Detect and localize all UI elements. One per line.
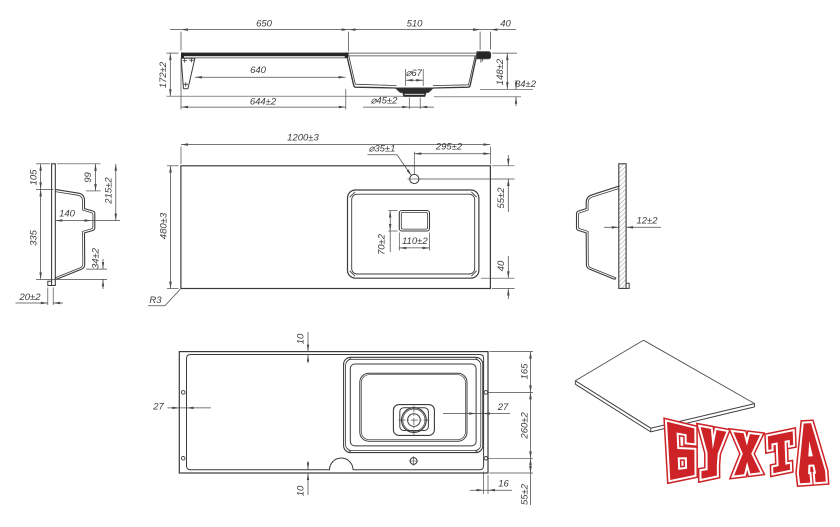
svg-text:34±2: 34±2 xyxy=(91,247,102,269)
svg-text:27: 27 xyxy=(497,402,509,413)
svg-text:40: 40 xyxy=(500,19,511,30)
svg-text:1200±3: 1200±3 xyxy=(287,133,319,144)
svg-text:⌀45±2: ⌀45±2 xyxy=(371,96,399,107)
svg-text:148±2: 148±2 xyxy=(495,58,506,85)
svg-text:⌀67: ⌀67 xyxy=(406,68,423,79)
svg-text:R3: R3 xyxy=(149,295,162,306)
svg-text:55±2: 55±2 xyxy=(496,187,507,209)
svg-text:510: 510 xyxy=(407,19,424,30)
svg-text:16: 16 xyxy=(498,479,509,490)
svg-text:27: 27 xyxy=(152,401,164,412)
svg-text:640: 640 xyxy=(250,65,267,76)
svg-text:260±2: 260±2 xyxy=(519,412,530,440)
svg-text:99: 99 xyxy=(83,172,94,183)
svg-text:⌀35±1: ⌀35±1 xyxy=(369,143,396,154)
svg-text:110±2: 110±2 xyxy=(402,236,428,247)
svg-text:172±2: 172±2 xyxy=(158,61,169,88)
svg-text:40: 40 xyxy=(496,260,507,271)
svg-text:10: 10 xyxy=(296,485,307,496)
svg-text:480±3: 480±3 xyxy=(158,212,169,239)
svg-text:644±2: 644±2 xyxy=(250,96,277,107)
svg-text:165: 165 xyxy=(519,363,530,380)
svg-text:650: 650 xyxy=(256,19,273,30)
svg-text:215±2: 215±2 xyxy=(104,177,115,205)
svg-text:70±2: 70±2 xyxy=(376,233,387,255)
svg-text:55±2: 55±2 xyxy=(519,483,530,505)
svg-text:34±2: 34±2 xyxy=(515,79,537,90)
svg-text:12±2: 12±2 xyxy=(636,215,658,226)
svg-text:335: 335 xyxy=(28,229,39,246)
svg-text:295±2: 295±2 xyxy=(435,142,463,153)
svg-text:10: 10 xyxy=(296,333,307,344)
svg-text:20±2: 20±2 xyxy=(18,292,41,303)
svg-text:105: 105 xyxy=(28,169,39,186)
svg-text:140: 140 xyxy=(59,208,76,219)
